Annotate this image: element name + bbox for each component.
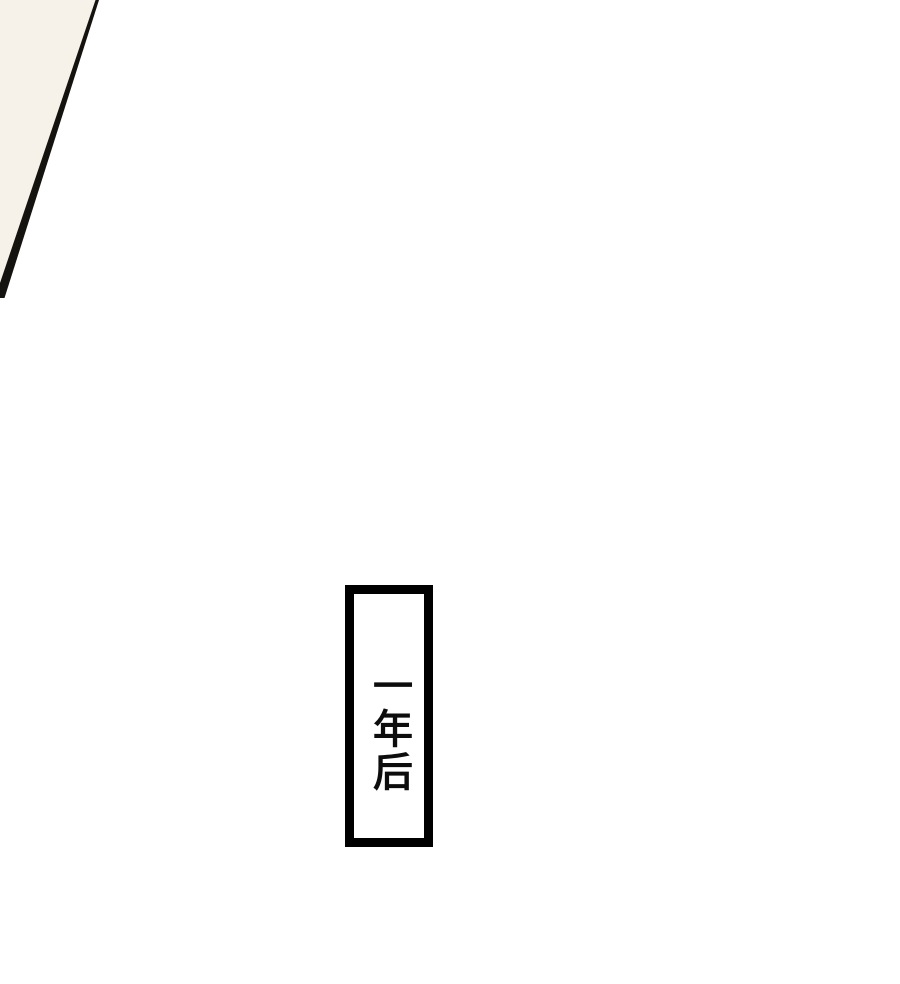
comic-page: 一年后 bbox=[0, 0, 900, 984]
panel-corner-art bbox=[0, 0, 100, 300]
time-skip-caption-box: 一年后 bbox=[345, 585, 433, 847]
time-skip-caption-text: 一年后 bbox=[369, 665, 409, 794]
